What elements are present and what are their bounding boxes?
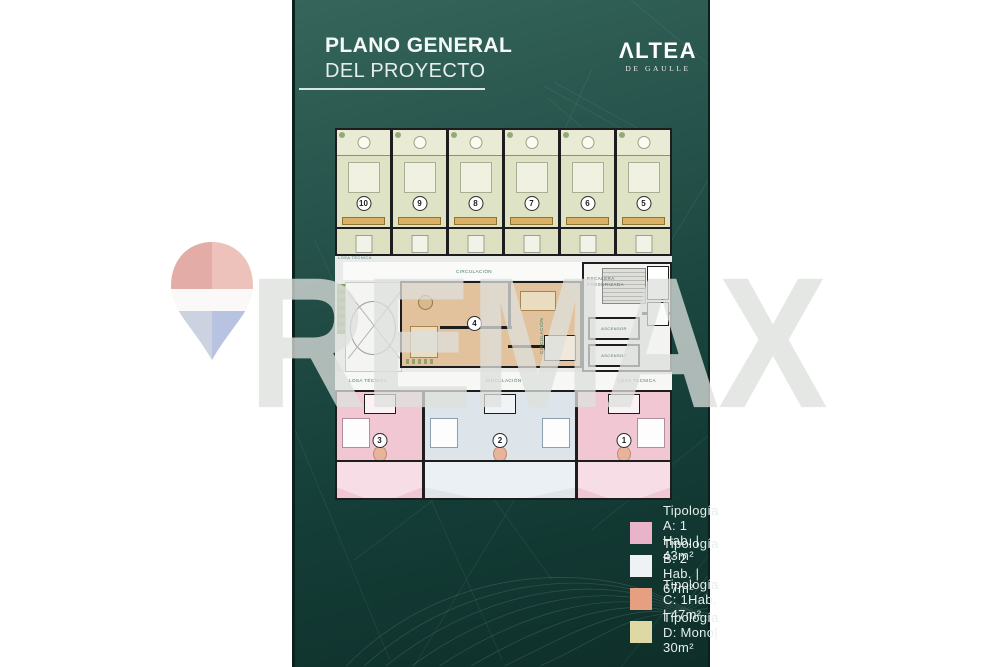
kitchen-counter-sketch	[622, 217, 665, 225]
bathroom-sketch	[484, 394, 516, 414]
circulation-core: ESCALERA PRESURIZADA ASCENSOR ASCENSOR	[582, 262, 672, 372]
title-line-1: PLANO GENERAL	[325, 34, 512, 58]
bottom-unit-row: 3 2 1	[335, 390, 672, 500]
brand-subtitle: DE GAULLE	[617, 64, 699, 73]
table-sketch	[525, 136, 538, 149]
balcony	[425, 460, 575, 498]
unit-cell-6: 6	[561, 130, 617, 254]
plant-sketch	[451, 132, 457, 138]
ottoman-sketch	[493, 446, 507, 462]
planter-strip	[337, 284, 345, 334]
legend-swatch-a	[630, 522, 652, 544]
losa-tecnica-label-left: LOSA TÉCNICA	[349, 378, 387, 383]
unit-number-badge: 4	[467, 316, 482, 331]
bathroom-sketch	[523, 235, 540, 253]
balcony	[337, 130, 390, 156]
circulation-label-top: CIRCULACIÓN	[456, 269, 492, 274]
bathroom-sketch	[608, 394, 640, 414]
bathroom-sketch	[635, 235, 652, 253]
unit-cell-3: 3	[337, 392, 425, 498]
unit-number-badge: 8	[468, 196, 483, 211]
interior-wall	[508, 283, 511, 327]
middle-band: LOSA TÉCNICA CIRCULACIÓN	[335, 256, 672, 390]
unit-cell-9: 9	[393, 130, 449, 254]
technical-slab-zone	[345, 282, 402, 372]
unit-number-badge: 5	[636, 196, 651, 211]
legend-swatch-d	[630, 621, 652, 643]
losa-tecnica-label-right: LOSA TÉCNICA	[618, 378, 656, 383]
legend-item-d: Tipología D: Mono| 30m²	[630, 621, 719, 643]
bed-sketch	[410, 326, 438, 358]
unit-cell-8: 8	[449, 130, 505, 254]
unit-cell-4: 4	[400, 281, 582, 368]
circulation-label-vertical: CIRCULACIÓN	[539, 298, 544, 354]
bed-sketch	[628, 162, 660, 193]
bed-sketch	[404, 162, 436, 193]
kitchen-counter-sketch	[510, 217, 553, 225]
elevator-1: ASCENSOR	[588, 317, 640, 340]
ottoman-sketch	[373, 446, 387, 462]
unit-number-badge: 7	[524, 196, 539, 211]
service-room	[647, 302, 669, 326]
unit-number-badge: 6	[580, 196, 595, 211]
elevator-2: ASCENSOR	[588, 344, 640, 367]
remax-balloon-watermark-icon	[171, 242, 253, 360]
ottoman-sketch	[617, 446, 631, 462]
unit-cell-7: 7	[505, 130, 561, 254]
table-sketch	[469, 136, 482, 149]
service-zone	[617, 227, 670, 254]
service-zone	[561, 227, 614, 254]
bed-sketch	[516, 162, 548, 193]
table-sketch	[418, 295, 433, 310]
bed-sketch	[637, 418, 665, 448]
unit-cell-2: 2	[425, 392, 578, 498]
sofa-sketch	[520, 291, 556, 311]
floor-plan: 10 9 8 7	[335, 128, 672, 500]
title-line-2: DEL PROYECTO	[325, 60, 512, 83]
typology-legend: Tipología A: 1 Hab. | 43m² Tipología B: …	[630, 522, 719, 654]
corridor-top: CIRCULACIÓN	[343, 262, 605, 280]
unit-number-badge: 10	[356, 196, 371, 211]
kitchen-counter-sketch	[398, 217, 441, 225]
plant-sketch	[507, 132, 513, 138]
legend-item-b: Tipología B: 2 Hab. | 67m²	[630, 555, 719, 577]
bed-sketch	[342, 418, 370, 448]
bed-sketch	[348, 162, 380, 193]
top-unit-row: 10 9 8 7	[335, 128, 672, 256]
service-zone	[393, 227, 446, 254]
unit-cell-5: 5	[617, 130, 670, 254]
bed-sketch	[572, 162, 604, 193]
legend-item-c: Tipología C: 1Hab. | 47m²	[630, 588, 719, 610]
bathroom-sketch	[544, 335, 576, 361]
brand-name: ΛLTEA	[617, 40, 699, 62]
legend-label-d: Tipología D: Mono| 30m²	[663, 610, 719, 655]
plant-sketch	[339, 132, 345, 138]
plant-sketch	[406, 359, 434, 364]
service-zone	[505, 227, 558, 254]
bathroom-sketch	[364, 394, 396, 414]
kitchen-counter-sketch	[342, 217, 385, 225]
balcony	[617, 130, 670, 156]
unit-number-badge: 1	[617, 433, 632, 448]
table-sketch	[357, 136, 370, 149]
table-sketch	[637, 136, 650, 149]
table-sketch	[413, 136, 426, 149]
bathroom-sketch	[411, 235, 428, 253]
service-room	[647, 266, 669, 300]
corridor-bottom: LOSA TÉCNICA CIRCULACIÓN LOSA TÉCNICA	[335, 372, 672, 390]
bed-sketch	[460, 162, 492, 193]
losa-tecnica-label-top: LOSA TÉCNICA	[338, 255, 372, 260]
balcony	[449, 130, 502, 156]
unit-cell-1: 1	[578, 392, 670, 498]
bed-sketch	[542, 418, 570, 448]
circulation-label-bottom: CIRCULACIÓN	[485, 378, 521, 383]
unit-cell-10: 10	[337, 130, 393, 254]
elevator-label: ASCENSOR	[601, 326, 627, 331]
bathroom-sketch	[579, 235, 596, 253]
project-flyer: PLANO GENERAL DEL PROYECTO ΛLTEA DE GAUL…	[0, 0, 1000, 667]
bathroom-sketch	[467, 235, 484, 253]
plant-sketch	[395, 132, 401, 138]
title-underline	[299, 88, 485, 90]
balcony	[505, 130, 558, 156]
unit-number-badge: 2	[493, 433, 508, 448]
balcony	[578, 460, 670, 498]
service-zone	[449, 227, 502, 254]
balcony	[337, 460, 422, 498]
kitchen-counter-sketch	[454, 217, 497, 225]
service-zone	[337, 227, 390, 254]
balcony	[393, 130, 446, 156]
pressurized-stair-label: ESCALERA PRESURIZADA	[587, 276, 627, 287]
unit-number-badge: 3	[372, 433, 387, 448]
bed-sketch	[430, 418, 458, 448]
balcony	[561, 130, 614, 156]
legend-swatch-b	[630, 555, 652, 577]
brand-logo: ΛLTEA DE GAULLE	[617, 40, 699, 73]
bathroom-sketch	[355, 235, 372, 253]
legend-swatch-c	[630, 588, 652, 610]
plant-sketch	[619, 132, 625, 138]
table-sketch	[581, 136, 594, 149]
kitchen-counter-sketch	[566, 217, 609, 225]
unit-number-badge: 9	[412, 196, 427, 211]
elevator-label: ASCENSOR	[601, 353, 627, 358]
page-title: PLANO GENERAL DEL PROYECTO	[325, 34, 512, 83]
plant-sketch	[563, 132, 569, 138]
